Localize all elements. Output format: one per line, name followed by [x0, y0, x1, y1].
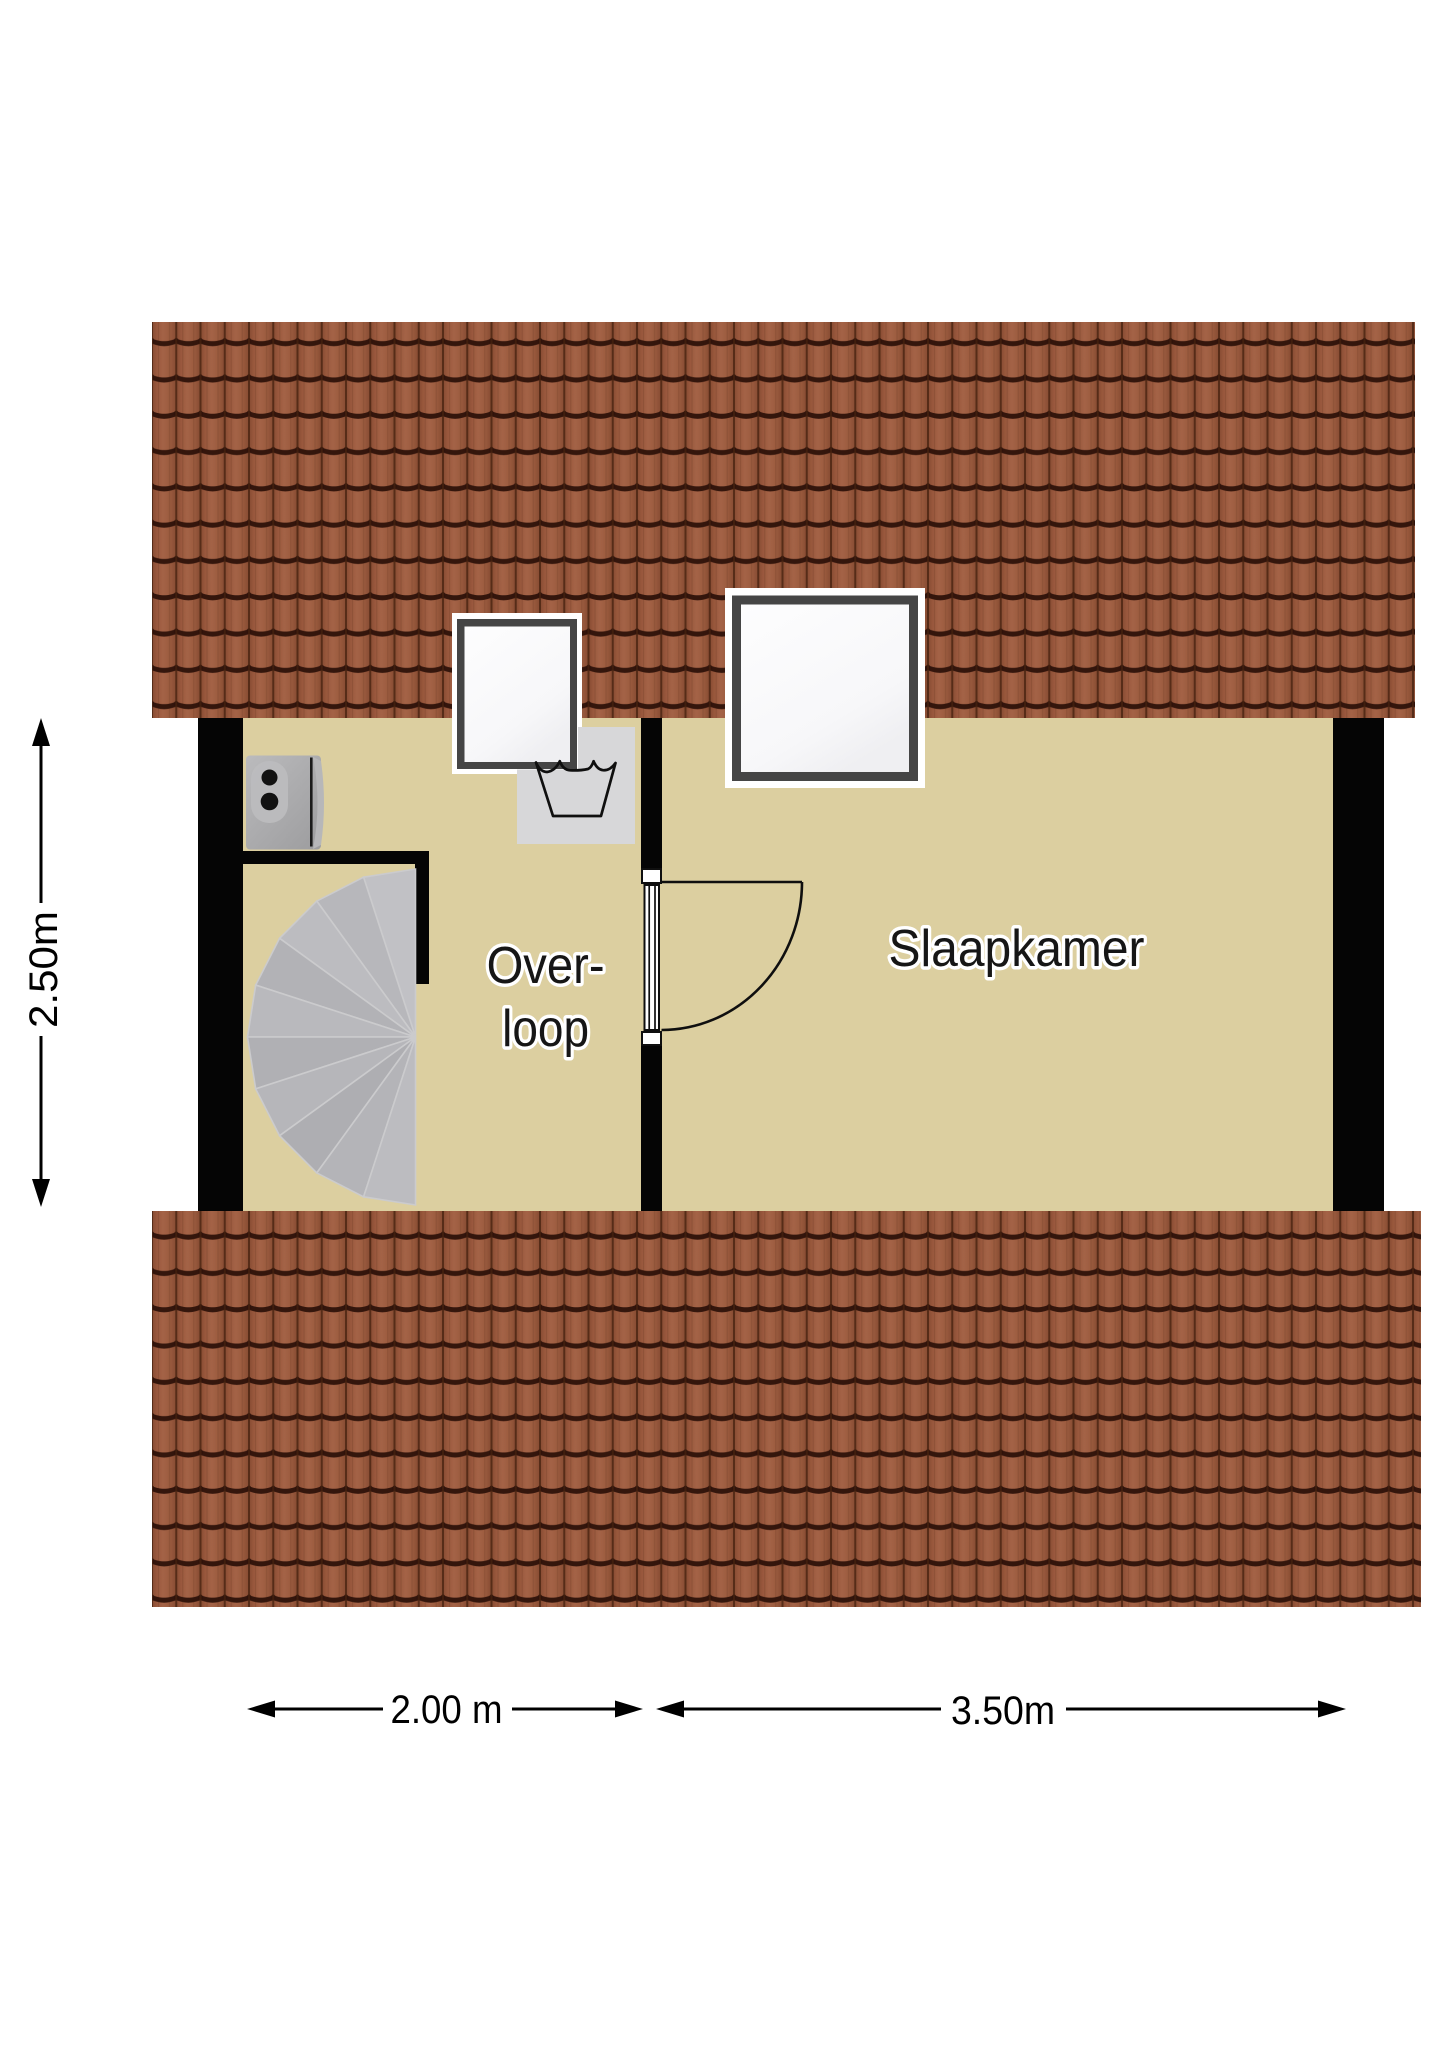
svg-text:3.50m: 3.50m: [951, 1689, 1055, 1733]
svg-text:loop: loop: [502, 1000, 589, 1058]
svg-text:2.50m: 2.50m: [22, 911, 66, 1028]
svg-text:Over-: Over-: [487, 937, 605, 995]
svg-text:Slaapkamer: Slaapkamer: [889, 920, 1145, 978]
svg-text:2.00 m: 2.00 m: [391, 1688, 503, 1732]
